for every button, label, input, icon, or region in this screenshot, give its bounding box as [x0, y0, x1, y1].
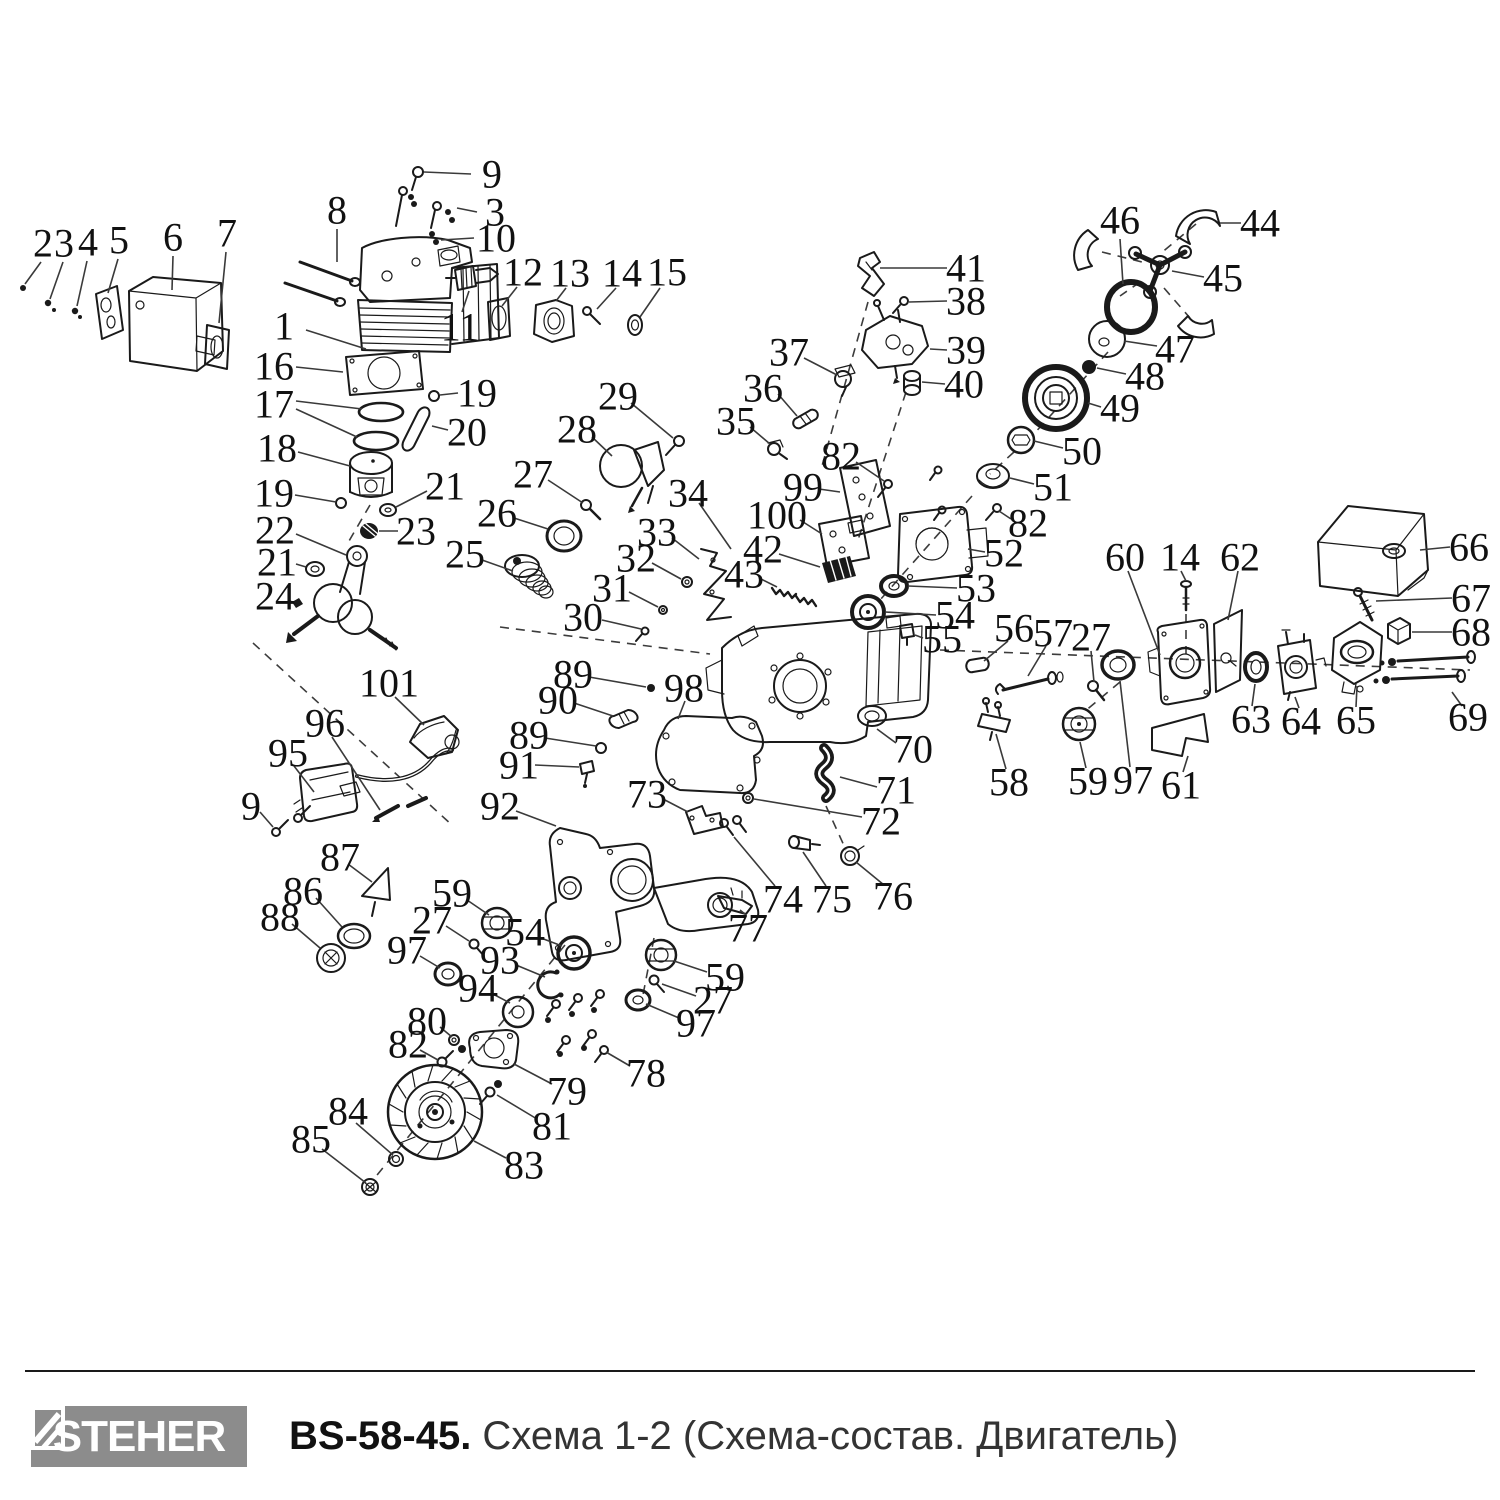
rod-57 [996, 672, 1063, 694]
piston-18 [350, 452, 392, 497]
callout-line [296, 564, 306, 567]
callout-line [646, 1004, 679, 1018]
screw-27 [650, 976, 665, 993]
part-number-label: 41 [946, 246, 986, 291]
part-number-label: 14 [602, 251, 642, 296]
part-number-label: 59 [1068, 759, 1108, 804]
callout-line [840, 777, 877, 787]
part-number-label: 76 [873, 874, 913, 919]
cup-washer-51 [977, 464, 1009, 488]
part-number-label: 96 [305, 701, 345, 746]
part-number-label: 1 [274, 304, 294, 349]
part-number-label: 100 [747, 493, 807, 538]
callout-line [296, 534, 346, 555]
part-number-label: 6 [163, 215, 183, 260]
part-number-label: 94 [458, 966, 498, 1011]
part-number-label: 84 [328, 1089, 368, 1134]
callout-line [482, 560, 513, 571]
needle-bearing-23 [360, 523, 378, 539]
crankcase-right-group [546, 828, 759, 960]
part-number-label: 101 [359, 661, 419, 706]
elbow-41 [858, 252, 884, 296]
callout-line [296, 367, 343, 372]
screw-82 [986, 504, 1001, 520]
screws-74 [720, 816, 746, 835]
part-number-label: 44 [1240, 201, 1280, 246]
callout-line [754, 799, 862, 817]
heat-plate-61 [1152, 714, 1208, 756]
part-number-label: 40 [944, 362, 984, 407]
pin-clip-19 [336, 498, 346, 508]
callout-line [306, 330, 366, 349]
nut-32 [682, 577, 692, 587]
part-number-label: 28 [557, 407, 597, 452]
bolt-train-group [966, 651, 1134, 740]
part-number-label: 21 [425, 464, 465, 509]
callout-line [548, 480, 583, 503]
page-title: BS-58-45. Схема 1-2 (Схема-состав. Двига… [289, 1406, 1178, 1467]
clutch-drum-49 [1025, 367, 1087, 429]
part-number-label: 56 [994, 606, 1034, 651]
callout-line [424, 172, 471, 174]
circlip-93 [538, 970, 564, 998]
part-number-label: 46 [1100, 198, 1140, 243]
callout-line [296, 401, 362, 409]
part-37 [835, 365, 855, 396]
crankcase-group [580, 614, 931, 793]
washer-part-3 [45, 300, 51, 306]
part-number-label: 74 [763, 877, 803, 922]
part-number-label: 87 [320, 835, 360, 880]
clutch-shoe-46 [1074, 230, 1098, 270]
piston-pin-20 [403, 407, 430, 450]
part-35 [768, 440, 787, 459]
part-number-label: 25 [445, 532, 485, 577]
part-number-label: 29 [598, 374, 638, 419]
part-number-label: 91 [499, 743, 539, 788]
pump-housing-60 [1148, 620, 1210, 705]
part-number-label: 4 [78, 220, 98, 265]
callout-line [602, 620, 641, 629]
part-number-label: 7 [217, 211, 237, 256]
steher-logo-icon [31, 1406, 65, 1450]
part-number-label: 61 [1161, 763, 1201, 808]
washer-21 [380, 504, 396, 516]
callout-line [441, 238, 474, 240]
ball-89 [647, 684, 655, 692]
callout-line [674, 961, 707, 972]
callout-line [1420, 547, 1450, 550]
part-number-label: 82 [388, 1022, 428, 1067]
air-filter-cover-66 [1318, 506, 1428, 596]
grommet-76 [841, 846, 864, 865]
ball-89 [596, 743, 606, 753]
part-number-label: 68 [1451, 610, 1491, 655]
callout-line [516, 811, 556, 826]
model-number: BS-58-45. [289, 1414, 471, 1459]
scheme-subtitle: Схема 1-2 (Схема-состав. Двигатель) [471, 1414, 1178, 1459]
callout-line [930, 349, 947, 350]
part-36 [793, 410, 818, 429]
part-number-label: 97 [387, 928, 427, 973]
part-number-label: 45 [1203, 256, 1243, 301]
ignition-wire-96-inner [357, 750, 452, 780]
screw-82 [930, 467, 942, 481]
grommet-68 [1388, 618, 1410, 644]
gasket-62 [1214, 610, 1242, 692]
part-number-label: 13 [550, 251, 590, 296]
clutch-spring-ring [1107, 282, 1155, 332]
carburetor-bracket-39 [862, 300, 928, 384]
bracket-73 [686, 806, 723, 834]
callout-line [662, 984, 696, 996]
callout-line [516, 965, 545, 977]
screw-38 [893, 297, 908, 313]
bracket-58 [978, 698, 1010, 740]
exploded-diagram: 1234567893101112131415161718192021192223… [0, 0, 1500, 1365]
brand-logo: STEHER [31, 1406, 247, 1467]
callout-line [909, 301, 947, 302]
callout-line [535, 765, 579, 767]
callout-line [1034, 441, 1063, 448]
part-number-label: 95 [268, 731, 308, 776]
callout-line [295, 495, 336, 502]
callout-line [514, 518, 548, 529]
part-number-label: 72 [861, 799, 901, 844]
callout-line [1010, 478, 1034, 484]
washer-part-4 [72, 308, 78, 314]
callout-line [1097, 368, 1126, 374]
callout-line [1120, 239, 1123, 284]
part-number-label: 75 [812, 877, 852, 922]
labels-layer: 1234567893101112131415161718192021192223… [25, 152, 1491, 1188]
page: 1234567893101112131415161718192021192223… [0, 0, 1500, 1500]
spacer-48 [1082, 360, 1096, 374]
callout-line [50, 262, 63, 299]
part-number-label: 58 [989, 760, 1029, 805]
gasket-part-5 [96, 286, 123, 339]
footer-divider [25, 1370, 1475, 1372]
callout-line [652, 563, 681, 579]
callout-line [298, 452, 350, 466]
carburetor-64 [1278, 630, 1326, 700]
part-number-label: 82 [821, 434, 861, 479]
head-screws [396, 167, 455, 245]
washer-50 [1008, 427, 1034, 453]
part-number-label: 43 [724, 552, 764, 597]
callout-line [172, 256, 173, 290]
part-number-label: 70 [893, 727, 933, 772]
cylinder-bolt [285, 262, 360, 306]
part-number-label: 9 [241, 784, 261, 829]
part-number-label: 62 [1220, 535, 1260, 580]
part-number-label: 34 [668, 471, 708, 516]
callout-line [922, 382, 945, 384]
part-number-label: 92 [480, 784, 520, 829]
part-number-label: 66 [1449, 525, 1489, 570]
screw-27 [1088, 681, 1104, 700]
washers-80 [449, 1035, 466, 1053]
callout-line [779, 554, 820, 567]
part-number-label: 20 [447, 410, 487, 455]
callout-line [396, 491, 427, 507]
callout-line [497, 1095, 537, 1119]
callout-line [589, 677, 646, 687]
callout-line [432, 426, 448, 430]
part-number-label: 88 [260, 895, 300, 940]
part-number-label: 65 [1336, 698, 1376, 743]
part-number-label: 85 [291, 1117, 331, 1162]
piston-ring [354, 432, 398, 450]
callout-line [1124, 341, 1157, 346]
part-number-label: 49 [1100, 386, 1140, 431]
spacer-40 [904, 371, 920, 395]
callout-line [296, 409, 357, 437]
callout-line [908, 586, 957, 588]
screw-29 [666, 436, 684, 455]
part-number-label: 2 [33, 221, 53, 266]
screw-14 [583, 307, 600, 324]
callout-line [1376, 598, 1452, 601]
springs-43 [772, 588, 816, 606]
muffler-group [20, 277, 229, 371]
part-number-label: 57 [1033, 611, 1073, 656]
part-number-label: 26 [477, 491, 517, 536]
oil-seal-26 [547, 521, 581, 551]
part-number-label: 64 [1281, 699, 1321, 744]
throttle-part-75 [789, 836, 820, 850]
callout-line [629, 592, 658, 607]
seal-15 [628, 315, 642, 335]
callout-line [574, 703, 613, 716]
callout-line [1120, 681, 1130, 767]
oil-pump-88 [317, 944, 345, 972]
screw-30 [636, 628, 649, 642]
screw-27 [581, 500, 600, 519]
part-number-label: 5 [109, 218, 129, 263]
screw-81 [480, 1080, 502, 1104]
module-bolts [372, 798, 426, 822]
part-number-label: 97 [1113, 758, 1153, 803]
valve-91 [580, 761, 594, 788]
part-number-label: 23 [396, 509, 436, 554]
screw-9b [272, 806, 310, 836]
part-number-label: 14 [1160, 535, 1200, 580]
bearing-54 [558, 937, 590, 969]
oil-seal-53 [881, 576, 907, 596]
oil-pump-worm-59 [1063, 708, 1095, 740]
part-number-label: 24 [255, 574, 295, 619]
part-number-label: 18 [257, 426, 297, 471]
part-number-label: 97 [676, 1001, 716, 1046]
part-number-label: 37 [769, 330, 809, 375]
spacer-ring-63 [1245, 653, 1267, 681]
clutch-spider-45 [1129, 246, 1191, 298]
nut-72 [743, 793, 753, 803]
ball-bearing-54 [852, 596, 884, 628]
washer-21 [306, 562, 324, 576]
callout-line [474, 1141, 506, 1158]
callout-line [77, 261, 87, 306]
part-number-label: 55 [922, 617, 962, 662]
callout-line [1128, 571, 1160, 655]
pin-clip-19 [429, 391, 439, 401]
part-number-label: 98 [664, 666, 704, 711]
crankcase-gasket-98 [656, 716, 763, 793]
intake-flange-13 [534, 300, 574, 342]
spring-25 [505, 555, 553, 598]
brand-name: STEHER [53, 1412, 225, 1462]
spring-87 [362, 868, 390, 916]
screw-14 [1181, 581, 1191, 610]
part-number-label: 63 [1231, 697, 1271, 742]
plug-cap-101 [410, 716, 459, 758]
part-number-label: 78 [626, 1051, 666, 1096]
part-number-label: 69 [1448, 695, 1488, 740]
screws-78 [545, 990, 608, 1062]
screw-part-2 [20, 285, 26, 291]
clutch-shoe-44 [1176, 210, 1220, 244]
part-number-label: 83 [504, 1143, 544, 1188]
callout-line [545, 738, 596, 746]
callout-line [1172, 271, 1204, 277]
gasket-79 [469, 1030, 518, 1068]
part-number-label: 73 [627, 772, 667, 817]
o-ring-86 [338, 924, 370, 948]
part-number-label: 27 [1071, 615, 1111, 660]
needle-cage-90 [609, 710, 637, 728]
washer-31 [659, 606, 667, 614]
callout-line [260, 812, 273, 827]
filter-base-65 [1332, 622, 1382, 694]
part-number-label: 15 [647, 250, 687, 295]
part-number-label: 11 [441, 305, 480, 350]
part-number-label: 27 [513, 452, 553, 497]
crankshaft-22 [286, 546, 396, 650]
part-number-label: 3 [54, 221, 74, 266]
seal-97 [626, 990, 650, 1010]
base-gasket-16 [346, 351, 423, 395]
part-number-label: 12 [503, 250, 543, 295]
felt-42 [822, 556, 856, 583]
callout-line [457, 208, 477, 212]
muffler-body [129, 277, 223, 371]
part-number-label: 8 [327, 188, 347, 233]
callout-line [440, 393, 458, 395]
part-number-label: 77 [728, 906, 768, 951]
part-number-label: 17 [254, 382, 294, 427]
part-number-label: 33 [637, 510, 677, 555]
washer-47 [1089, 321, 1125, 357]
flywheel-group [362, 1065, 482, 1195]
part-number-label: 60 [1105, 535, 1145, 580]
piston-ring [359, 403, 403, 421]
